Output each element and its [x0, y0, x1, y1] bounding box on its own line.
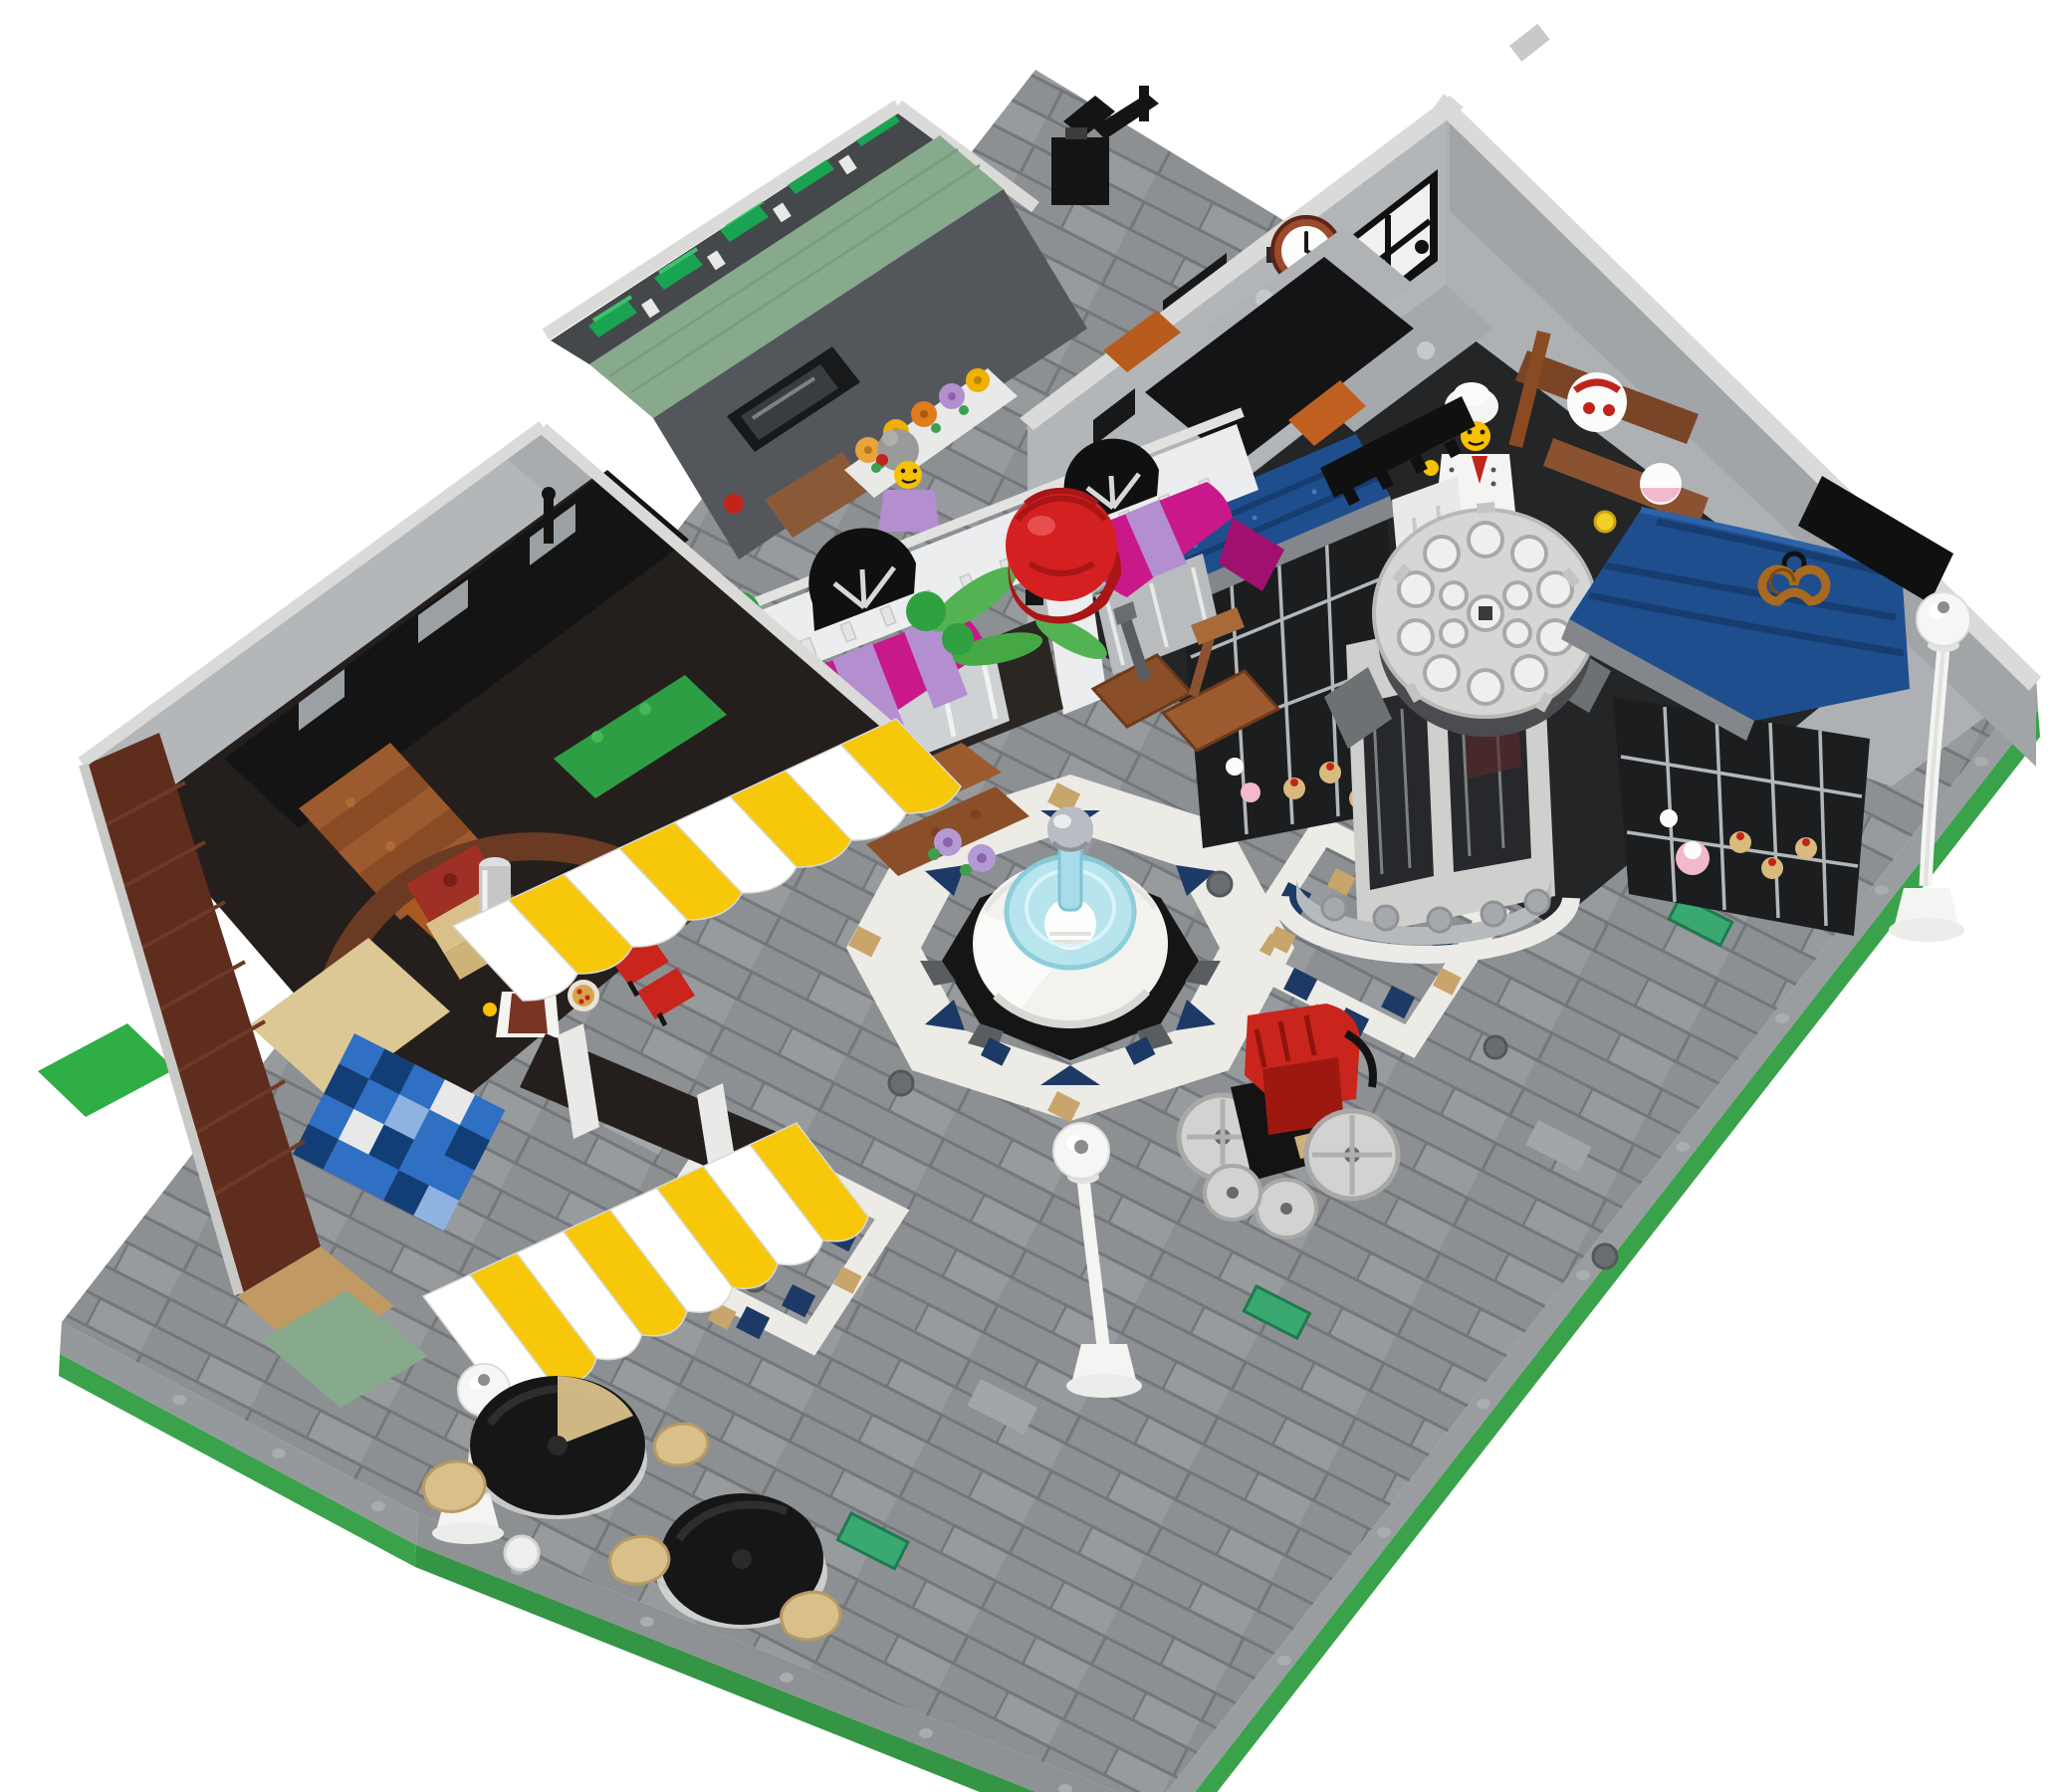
red-round-brick: [724, 494, 744, 514]
cafe-table-1: [470, 1376, 645, 1515]
wall-pin: [542, 487, 556, 544]
door-knob: [1415, 240, 1429, 254]
lamp-top-hole: [1938, 601, 1949, 613]
cherry-cake: [1567, 372, 1627, 432]
pink-cake: [1640, 463, 1682, 505]
rose-window-disc: [1374, 502, 1597, 737]
scene-canvas: [0, 0, 2058, 1792]
pizza-plate: [568, 980, 599, 1011]
white-stool: [505, 1536, 539, 1570]
yellow-jewel-lamp: [1595, 512, 1615, 532]
rose-head: [1006, 490, 1117, 601]
lego-town-square-photo: [0, 0, 2058, 1792]
